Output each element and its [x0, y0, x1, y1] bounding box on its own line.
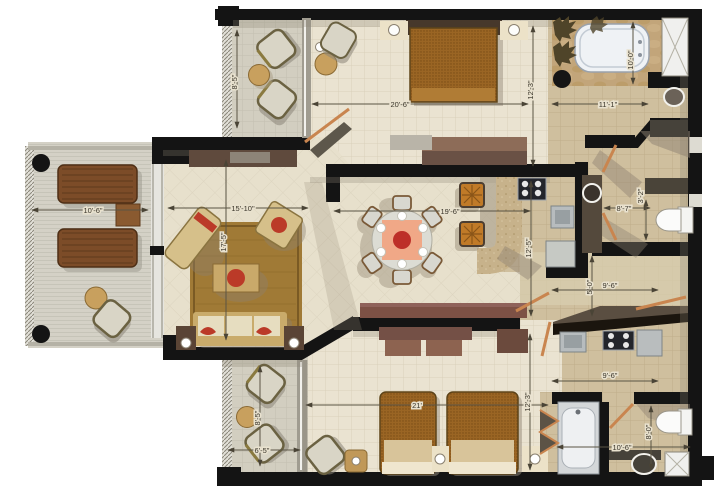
- svg-text:10'-6": 10'-6": [612, 443, 631, 452]
- svg-text:12'-3": 12'-3": [523, 392, 532, 411]
- svg-text:8'-7": 8'-7": [617, 204, 632, 213]
- svg-text:21': 21': [412, 401, 422, 410]
- svg-text:3'-2": 3'-2": [636, 188, 645, 203]
- svg-text:12'-5": 12'-5": [524, 238, 533, 257]
- svg-text:9'-6": 9'-6": [603, 371, 618, 380]
- svg-text:8'-5": 8'-5": [253, 410, 262, 425]
- svg-text:8'-5": 8'-5": [230, 74, 239, 89]
- svg-text:5'-0": 5'-0": [585, 279, 594, 294]
- svg-text:10'-6": 10'-6": [83, 206, 102, 215]
- svg-text:6'-5": 6'-5": [255, 446, 270, 455]
- svg-text:19'-6": 19'-6": [440, 207, 459, 216]
- svg-text:11'-1": 11'-1": [599, 100, 618, 109]
- svg-text:9'-6": 9'-6": [603, 281, 618, 290]
- svg-text:20'-6": 20'-6": [390, 100, 409, 109]
- svg-text:17'-5": 17'-5": [219, 232, 228, 251]
- svg-text:10'-0": 10'-0": [626, 50, 635, 69]
- svg-text:12'-3": 12'-3": [526, 80, 535, 99]
- svg-text:8'-0": 8'-0": [644, 424, 653, 439]
- svg-text:15'-10": 15'-10": [231, 204, 255, 213]
